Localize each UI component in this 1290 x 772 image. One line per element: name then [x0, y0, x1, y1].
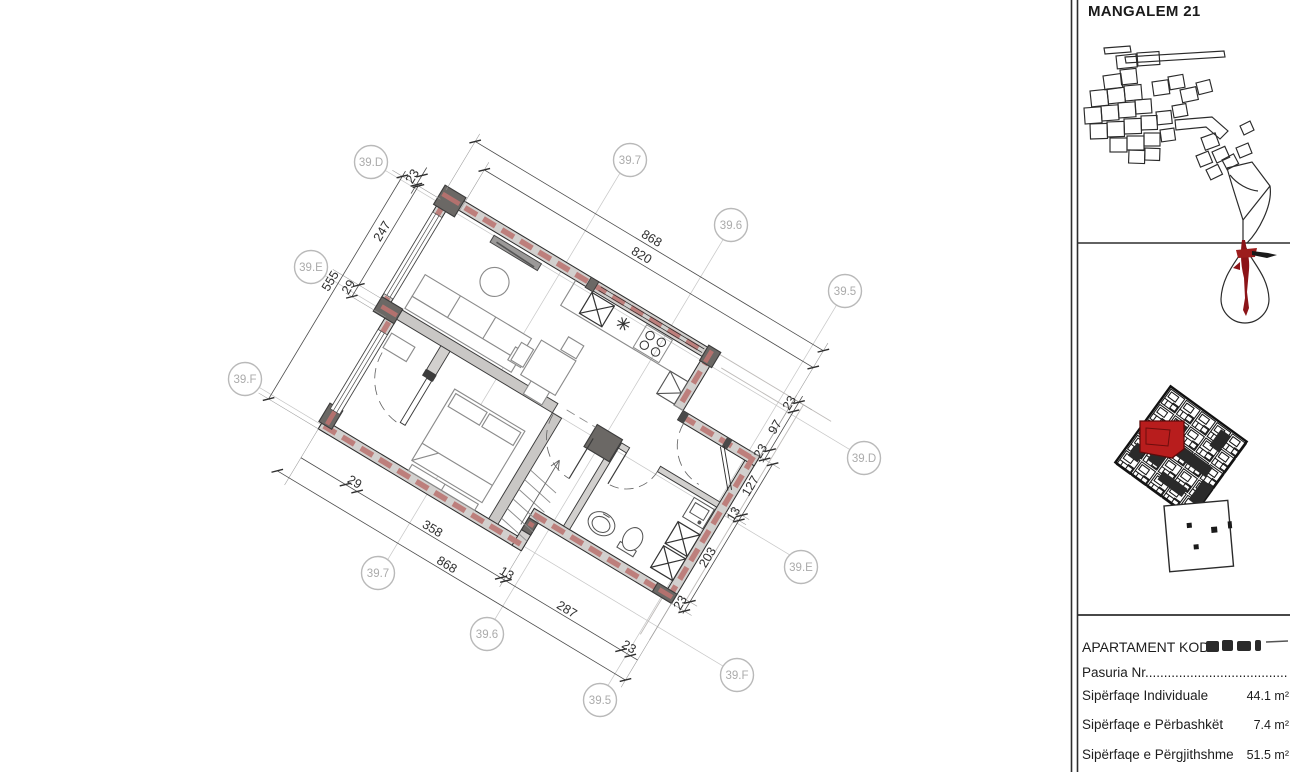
svg-text:Pasuria Nr....................: Pasuria Nr..............................…	[1082, 665, 1288, 680]
svg-text:APARTAMENT KOD: APARTAMENT KOD	[1082, 639, 1209, 655]
svg-text:MANGALEM 21: MANGALEM 21	[1088, 3, 1200, 20]
svg-text:Sipërfaqe e Përgjithshme: Sipërfaqe e Përgjithshme	[1082, 747, 1234, 762]
svg-text:39.E: 39.E	[299, 262, 323, 274]
svg-text:39.7: 39.7	[367, 568, 389, 580]
svg-text:51.5 m²: 51.5 m²	[1247, 748, 1289, 762]
svg-text:Sipërfaqe e Përbashkët: Sipërfaqe e Përbashkët	[1082, 717, 1223, 732]
svg-text:7.4 m²: 7.4 m²	[1254, 718, 1289, 732]
svg-text:39.F: 39.F	[725, 670, 748, 682]
svg-text:39.6: 39.6	[476, 629, 498, 641]
svg-text:39.E: 39.E	[789, 562, 813, 574]
svg-text:Sipërfaqe Individuale: Sipërfaqe Individuale	[1082, 688, 1208, 703]
svg-text:39.7: 39.7	[619, 155, 641, 167]
svg-text:44.1 m²: 44.1 m²	[1247, 689, 1289, 703]
svg-text:39.6: 39.6	[720, 220, 742, 232]
svg-text:39.D: 39.D	[852, 453, 876, 465]
svg-text:39.5: 39.5	[589, 695, 611, 707]
svg-text:39.F: 39.F	[233, 374, 256, 386]
svg-text:39.D: 39.D	[359, 157, 383, 169]
svg-text:39.5: 39.5	[834, 286, 856, 298]
